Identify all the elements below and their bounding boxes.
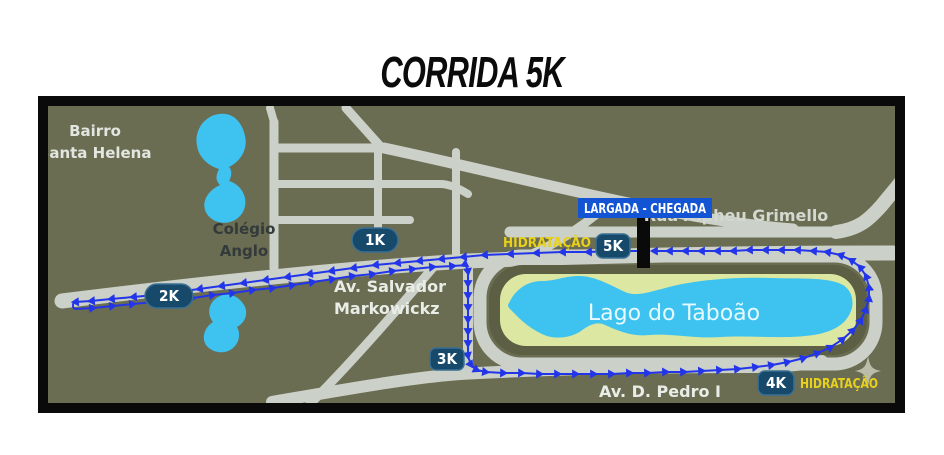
- km-label-5k: 5K: [603, 237, 624, 255]
- start-finish-banner: LARGADA - CHEGADA: [578, 198, 712, 218]
- road-grid-stub-1: [270, 108, 274, 122]
- label-av-salvador-line1: Av. Salvador: [334, 277, 446, 296]
- label-lago: Lago do Taboão: [588, 301, 760, 326]
- label-colegio-line2: Anglo: [220, 242, 268, 260]
- label-hidratacao-1: HIDRATAÇÃO: [503, 235, 591, 251]
- label-colegio-line1: Colégio: [213, 220, 276, 238]
- page-title-text: CORRIDA 5K: [380, 48, 564, 98]
- label-hidratacao-2: HIDRATAÇÃO: [800, 376, 878, 392]
- label-bairro-line2: Santa Helena: [48, 144, 151, 162]
- km-label-3k: 3K: [437, 350, 458, 368]
- label-bairro-line1: Bairro: [69, 122, 121, 140]
- km-label-2k: 2K: [159, 287, 180, 305]
- km-label-4k: 4K: [766, 374, 787, 392]
- page-title: CORRIDA 5K: [0, 48, 944, 98]
- race-map-frame: Bairro Santa Helena Colégio Anglo Av. Sa…: [38, 96, 905, 413]
- label-av-salvador-line2: Markowickz: [334, 299, 440, 318]
- km-label-1k: 1K: [365, 231, 386, 249]
- start-finish-banner-label: LARGADA - CHEGADA: [584, 201, 706, 217]
- label-av-pedro: Av. D. Pedro I: [599, 382, 721, 401]
- race-map: Bairro Santa Helena Colégio Anglo Av. Sa…: [48, 106, 895, 403]
- start-finish-bar: [637, 218, 650, 268]
